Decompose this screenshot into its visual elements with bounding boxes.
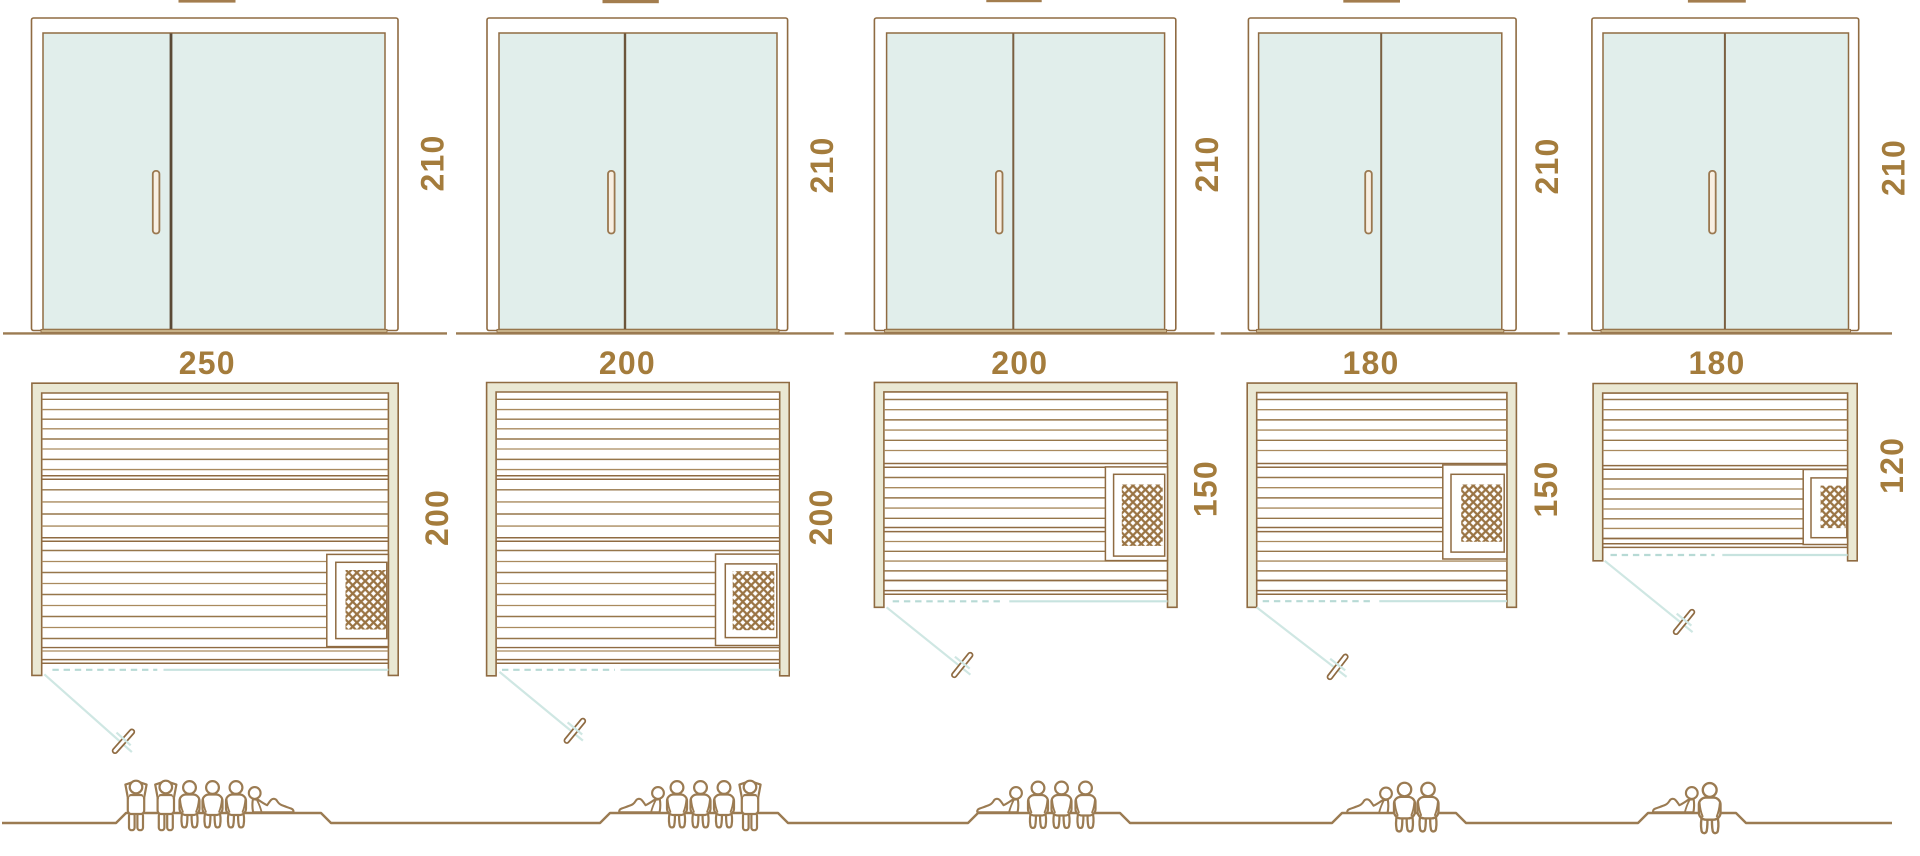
svg-text:250: 250 xyxy=(179,345,236,381)
svg-text:150: 150 xyxy=(1188,460,1224,517)
svg-text:180: 180 xyxy=(1343,345,1400,381)
svg-text:210: 210 xyxy=(414,135,450,192)
svg-text:210: 210 xyxy=(1189,136,1225,193)
svg-text:200: 200 xyxy=(599,345,656,381)
svg-text:200: 200 xyxy=(991,345,1048,381)
svg-text:200: 200 xyxy=(803,489,839,546)
svg-text:210: 210 xyxy=(1876,139,1912,196)
svg-text:120: 120 xyxy=(1874,437,1910,494)
svg-text:200: 200 xyxy=(419,489,455,546)
svg-text:180: 180 xyxy=(1689,345,1746,381)
svg-text:210: 210 xyxy=(1529,138,1565,195)
svg-text:210: 210 xyxy=(804,137,840,194)
svg-text:150: 150 xyxy=(1528,461,1564,518)
